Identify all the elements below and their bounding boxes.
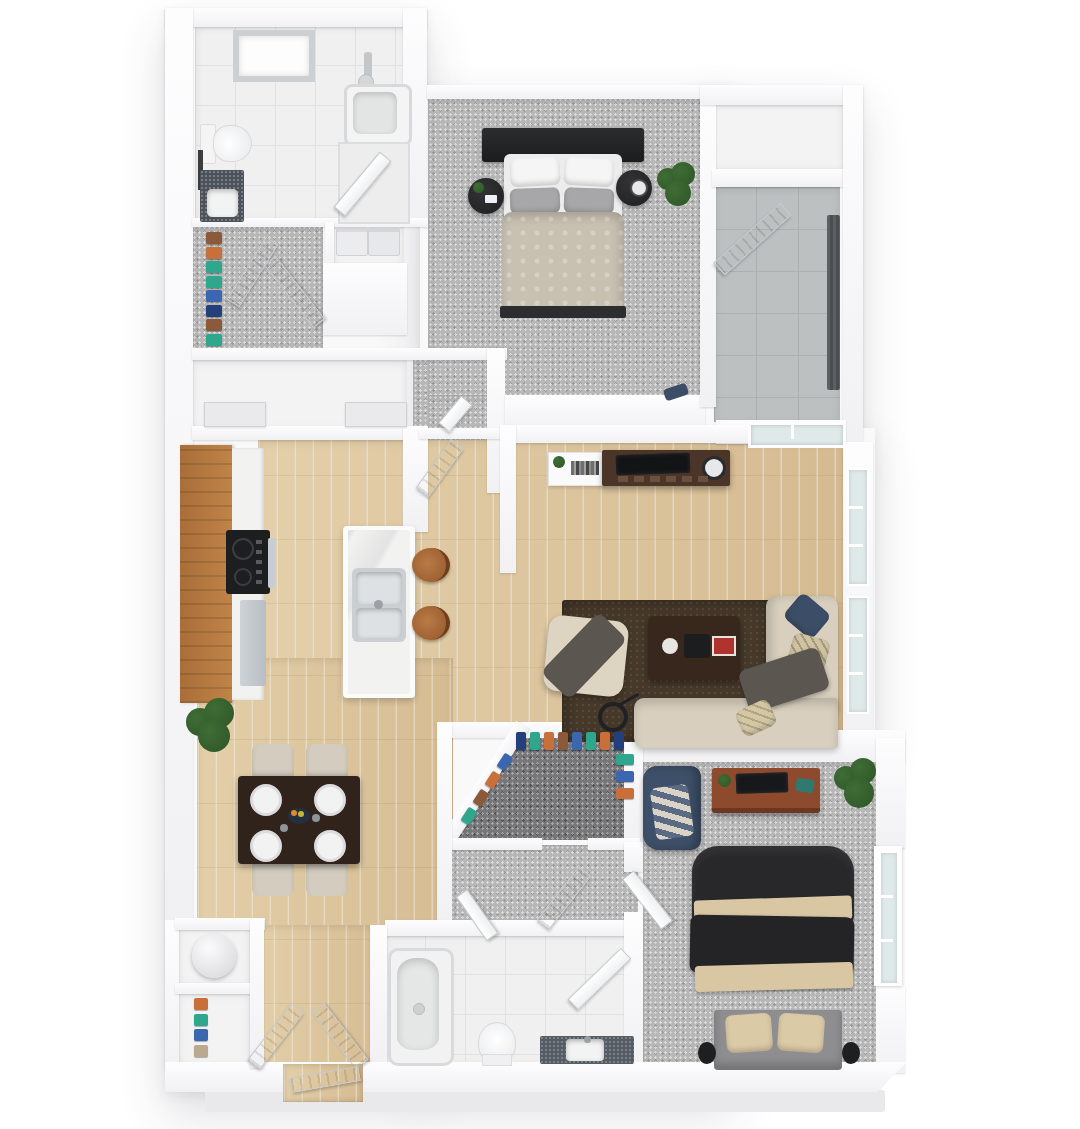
plate <box>250 784 282 816</box>
shelf-books <box>571 461 599 475</box>
coat-closet-floor <box>178 992 250 1064</box>
coffee-table <box>648 616 740 680</box>
tv-flat <box>616 453 691 476</box>
desk <box>712 768 820 813</box>
pouf-throw <box>540 612 627 700</box>
hanging-clothes-item <box>460 807 477 826</box>
wall <box>500 425 516 573</box>
hanging-clothes-item <box>194 1014 208 1026</box>
cooktop <box>226 530 270 594</box>
hanging-clothes-item <box>206 247 222 259</box>
wall <box>437 722 452 925</box>
bedroom-2-plant <box>834 758 882 810</box>
hanging-clothes-item <box>530 732 540 750</box>
bathtub-2-drain <box>413 1003 425 1015</box>
plate <box>314 830 346 862</box>
hanging-clothes-item <box>206 334 222 346</box>
nightstand-right <box>616 170 652 206</box>
hanging-clothes-item <box>206 276 222 288</box>
bed-2-pillow-left <box>725 1012 774 1053</box>
bed-2-accent-band-2 <box>695 962 854 992</box>
burner <box>234 568 252 586</box>
wall <box>323 263 407 335</box>
water-heater-tank <box>192 934 236 978</box>
dining-plant <box>186 698 242 754</box>
island-sink <box>352 568 406 642</box>
bed-1-pillow-gray-left <box>510 187 561 215</box>
toilet-1-bowl <box>213 125 252 162</box>
wall <box>712 169 862 187</box>
desk-notebook <box>795 778 815 793</box>
console-shelf-items <box>618 476 714 482</box>
closet-2-rail-diag <box>458 752 520 826</box>
media-shelf-white <box>548 452 606 486</box>
closet-2-rail-side <box>612 754 636 806</box>
shelf-plant <box>553 456 565 468</box>
bed-2-pillow-right <box>777 1012 826 1053</box>
dining-chair-bottom-left <box>252 862 294 896</box>
wall <box>370 925 387 1065</box>
dryer <box>368 228 400 256</box>
plate <box>314 784 346 816</box>
bed-2-side-table-right <box>842 1042 860 1064</box>
wall <box>385 920 640 936</box>
barstool-1 <box>412 548 450 582</box>
closet-1-rail <box>206 232 228 348</box>
dining-chair-top-left <box>252 744 294 778</box>
bed-2-side-table-left <box>698 1042 716 1064</box>
linen-cabinet-b <box>345 402 407 427</box>
wall <box>843 85 863 442</box>
hanging-clothes-item <box>516 732 526 750</box>
living-window-lower <box>847 596 869 714</box>
hanging-clothes-item <box>484 771 501 790</box>
plate <box>250 830 282 862</box>
wall <box>624 842 643 872</box>
media-console <box>602 450 730 486</box>
wall <box>165 8 427 27</box>
coat-closet-rail <box>194 998 212 1060</box>
nightstand-plant <box>473 182 484 193</box>
barstool-2 <box>412 606 450 640</box>
sliding-glass-door <box>748 422 846 448</box>
wall <box>450 838 542 850</box>
hanging-clothes-item <box>572 732 582 750</box>
washer <box>336 228 368 256</box>
toilet-2-tank <box>482 1054 512 1066</box>
wall <box>325 222 334 268</box>
accent-chair <box>643 766 701 850</box>
oven-handle <box>268 538 275 588</box>
nightstand-lamp <box>630 179 648 197</box>
living-window-upper <box>847 468 869 586</box>
bedroom-2-window-glass <box>879 851 899 985</box>
floor-lamp <box>598 702 628 732</box>
hanging-clothes-item <box>600 732 610 750</box>
pouf-lounger <box>542 614 630 698</box>
candle <box>280 824 288 832</box>
sink-basin-bottom <box>356 608 402 638</box>
table-decor-book <box>712 636 736 656</box>
accent-chair-striped-pillow <box>650 784 695 841</box>
hanging-clothes-item <box>614 732 624 750</box>
hanging-clothes-item <box>544 732 554 750</box>
patio-curtain <box>827 215 840 390</box>
wall <box>419 428 505 439</box>
table-decor-tray <box>684 634 710 658</box>
desk-monitor <box>736 772 789 794</box>
desk-plant <box>718 774 731 787</box>
hanging-clothes-item <box>616 788 634 799</box>
hanging-clothes-item <box>194 998 208 1010</box>
hanging-clothes-item <box>206 290 222 302</box>
bed-1-pillow-gray-right <box>564 187 615 215</box>
kitchen-cabinet-run <box>180 445 232 703</box>
linen-cabinet-a <box>204 402 266 427</box>
cooktop-knobs <box>256 540 262 584</box>
bed-1-footboard <box>500 306 626 318</box>
hanging-clothes-item <box>194 1029 208 1041</box>
bedroom-1-plant <box>655 162 697 208</box>
hanging-clothes-item <box>586 732 596 750</box>
dishwasher-front <box>240 600 266 686</box>
patio-closet-floor <box>712 103 844 169</box>
hanging-clothes-item <box>206 305 222 317</box>
sofa-seat-bottom <box>634 698 838 748</box>
dining-chair-top-right <box>306 744 348 778</box>
hanging-clothes-item <box>496 753 513 772</box>
bed-1-duvet <box>502 212 624 312</box>
candle <box>312 814 320 822</box>
sink-1 <box>207 189 238 217</box>
hanging-clothes-item <box>206 232 222 244</box>
wall <box>165 920 179 1070</box>
wall <box>700 97 716 407</box>
hanging-clothes-item <box>616 754 634 765</box>
bed-1-pillow-white-left <box>509 157 560 188</box>
floor-plan-3d <box>0 0 1080 1129</box>
dining-chair-bottom-right <box>306 862 348 896</box>
bathtub-1 <box>344 84 412 146</box>
kitchen-island <box>343 526 415 698</box>
closet-2-rail-top <box>516 730 636 752</box>
wall <box>192 426 405 440</box>
wall <box>876 985 905 1073</box>
burner <box>232 538 254 560</box>
nightstand-left <box>468 178 504 214</box>
wall <box>175 983 255 994</box>
table-decor-vase <box>662 638 678 654</box>
skylight <box>233 30 315 82</box>
hanging-clothes-item <box>558 732 568 750</box>
vanity-1 <box>200 170 244 222</box>
centerpiece-bowl <box>288 808 310 824</box>
bathtub-2 <box>388 948 454 1066</box>
hanging-clothes-item <box>616 771 634 782</box>
dining-table <box>238 776 360 864</box>
vanity-2 <box>540 1036 634 1064</box>
wall <box>192 348 507 360</box>
bed-1-pillow-white-right <box>563 157 614 188</box>
hanging-clothes-item <box>194 1045 208 1057</box>
sink-2-faucet <box>584 1036 591 1043</box>
hanging-clothes-item <box>206 319 222 331</box>
nightstand-card <box>485 195 497 203</box>
hanging-clothes-item <box>206 261 222 273</box>
wall <box>427 85 727 99</box>
wall <box>505 425 757 443</box>
bathtub-1-basin <box>353 92 397 134</box>
wall <box>700 85 862 105</box>
bedroom-2-window-frame <box>874 846 902 986</box>
sink-faucet <box>374 600 383 609</box>
hanging-clothes-item <box>472 789 489 808</box>
